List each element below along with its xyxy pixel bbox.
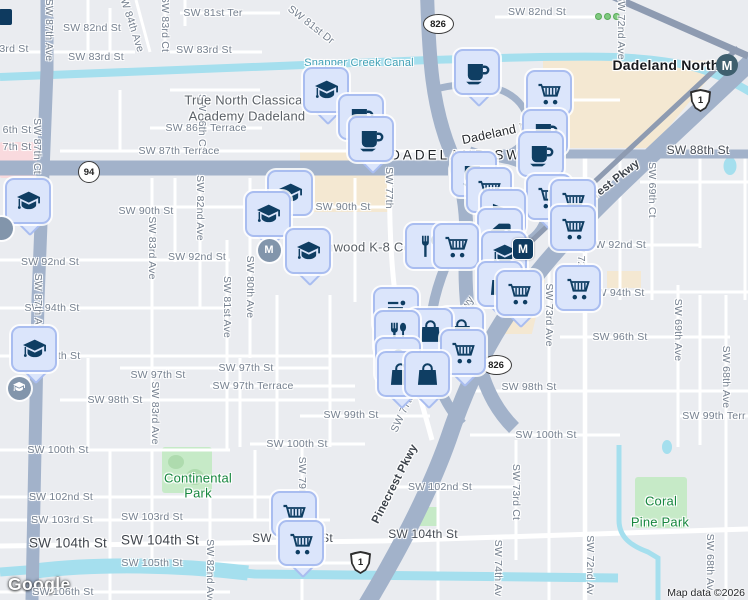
metro-m-glyph: M <box>264 244 273 256</box>
metro-m-glyph: M <box>722 58 733 73</box>
us-route-number: 1 <box>352 553 369 572</box>
street-label: SW 97th St <box>218 362 273 374</box>
school-poi-icon[interactable]: M <box>258 239 281 262</box>
street-label: SW 99th St <box>323 409 378 421</box>
poi-marker-bag[interactable] <box>404 351 450 411</box>
poi-marker-coffee[interactable] <box>454 49 500 109</box>
street-label: SW 72nd Ave <box>615 0 627 60</box>
street-label: SW 102nd St <box>29 491 93 503</box>
street-label: SW 83rd Ct <box>159 0 171 52</box>
street-label: SW 96th St <box>592 331 647 343</box>
cart-icon <box>550 205 596 251</box>
street-label: SW 69th Ave <box>672 299 684 362</box>
street-label: SW 69th Ct <box>646 162 658 218</box>
street-label: SW 106th St <box>32 586 93 598</box>
school-poi-icon[interactable] <box>8 377 31 400</box>
street-label: SW 92nd St <box>168 251 226 263</box>
street-label: SW 103rd St <box>31 514 93 526</box>
poi-marker-cart[interactable] <box>496 270 542 330</box>
street-label: 3rd St <box>0 43 29 55</box>
metrorail-station-icon[interactable]: M <box>512 238 534 260</box>
poi-marker-cart[interactable] <box>550 205 596 265</box>
street-label: SW 82nd Ave <box>204 539 216 600</box>
street-label: SW 82nd Ave <box>194 175 206 241</box>
street-label: SW 100th St <box>27 444 88 456</box>
poi-marker-cart[interactable] <box>433 223 479 283</box>
coffee-icon <box>348 116 394 162</box>
park-label: Pine Park <box>631 515 689 530</box>
route-shield: 94 <box>78 161 100 183</box>
street-label: SW 105th St <box>121 557 182 569</box>
street-label: SW 104th St <box>388 527 458 541</box>
cart-icon <box>496 270 542 316</box>
street-label: SW 72nd Av <box>584 535 596 595</box>
park-label: Continental <box>164 471 232 486</box>
park-label: Coral <box>645 494 677 509</box>
cart-icon <box>433 223 479 269</box>
street-label: SW 83rd Ave <box>149 381 161 444</box>
street-label: SW 68th Av <box>704 534 716 591</box>
street-label: 6th St <box>3 124 32 136</box>
transit-label: Dadeland North <box>612 57 719 73</box>
street-label: SW 74th Av <box>492 540 504 597</box>
street-label: SW 73rd Ave <box>543 283 555 346</box>
poi-marker-coffee[interactable] <box>348 116 394 176</box>
street-label: SW 104th St <box>121 533 199 548</box>
street-label: SW 99th Terr <box>682 410 745 422</box>
coffee-icon <box>454 49 500 95</box>
graduation-icon <box>5 178 51 224</box>
street-label: SW 87th Terrace <box>138 145 219 157</box>
route-shield: 826 <box>423 14 454 34</box>
cart-icon <box>278 520 324 566</box>
street-label: SW 83rd Ave <box>146 216 158 279</box>
coffee-icon <box>518 131 564 177</box>
street-label: SW 90th St <box>118 205 173 217</box>
street-label: SW 82nd St <box>63 22 121 34</box>
map-canvas[interactable]: Google Map data ©2026 SW 82nd St3rd StSW… <box>0 0 748 600</box>
street-label: SW 83rd St <box>176 44 232 56</box>
street-label: SW 68th Ave <box>720 346 732 409</box>
clipped-marker-fragment <box>0 9 12 25</box>
street-label: SW 92nd St <box>21 256 79 268</box>
graduation-icon <box>12 380 26 397</box>
graduation-icon <box>285 228 331 274</box>
us-route-number: 1 <box>692 91 709 110</box>
street-label: SW 83rd St <box>68 51 124 63</box>
street-label: SW 97th Terrace <box>212 380 293 392</box>
street-label: SW 82nd St <box>508 6 566 18</box>
street-label: SW 98th St <box>501 381 556 393</box>
street-label: SW 98th St <box>87 394 142 406</box>
street-label: SW 81st Ter <box>183 7 242 19</box>
poi-marker-cart[interactable] <box>278 520 324 580</box>
park-label: Park <box>184 486 212 501</box>
street-label: SW 102nd St <box>408 481 472 493</box>
street-label: SW 104th St <box>29 536 107 551</box>
street-label: SW 73rd Ct <box>510 464 522 520</box>
metro-m-glyph: M <box>518 242 528 256</box>
poi-marker-graduation[interactable] <box>285 228 331 288</box>
street-label: SW 100th St <box>266 438 327 450</box>
street-label: SW 87th Ave <box>43 0 55 61</box>
street-label: SW 81st Ave <box>221 276 233 338</box>
street-label: SW 88th St <box>667 143 730 157</box>
poi-marker-cart[interactable] <box>555 265 601 325</box>
street-label: SW 80th Ave <box>244 256 256 319</box>
street-label: SW 92nd St <box>588 239 646 251</box>
street-label: SW 100th St <box>515 429 576 441</box>
street-label: SW 90th St <box>315 201 370 213</box>
metrorail-station-icon[interactable]: M <box>716 54 738 76</box>
graduation-icon <box>11 326 57 372</box>
poi-label: Academy Dadeland <box>189 109 306 124</box>
cart-icon <box>555 265 601 311</box>
street-label: SW 87th Ct <box>31 118 43 174</box>
street-label: 7th St <box>3 141 32 153</box>
bag-icon <box>404 351 450 397</box>
street-label: SW 103rd St <box>121 511 183 523</box>
poi-label: True North Classical <box>184 93 305 108</box>
street-label: SW 97th St <box>130 369 185 381</box>
street-label: SW <box>252 531 272 545</box>
